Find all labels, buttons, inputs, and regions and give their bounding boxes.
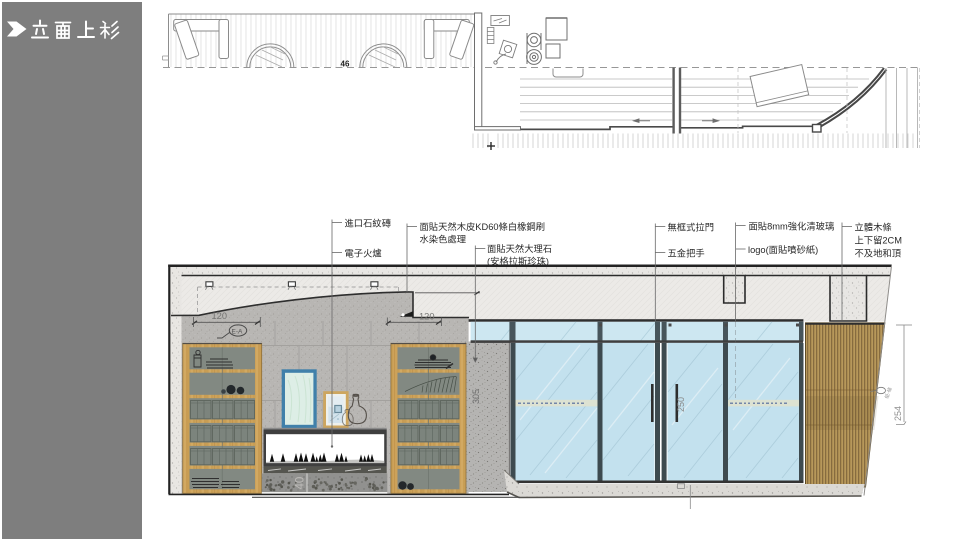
svg-text:250: 250 [676,397,686,412]
svg-text:40: 40 [295,477,307,490]
svg-text:120: 120 [419,312,435,322]
svg-text:五金把手: 五金把手 [668,248,705,259]
svg-text:254: 254 [893,406,903,421]
svg-text:面貼天然木皮KD60條白橡鋼刷: 面貼天然木皮KD60條白橡鋼刷 [420,221,546,232]
svg-text:面貼8mm強化清玻璃: 面貼8mm強化清玻璃 [749,221,835,232]
svg-text:水染色處理: 水染色處理 [420,234,467,245]
svg-text:120: 120 [212,311,228,321]
svg-text:305: 305 [471,389,481,404]
svg-text:立體木條: 立體木條 [855,222,892,233]
svg-text:46: 46 [341,60,350,69]
svg-text:logo(面貼噴砂紙): logo(面貼噴砂紙) [748,244,818,255]
svg-text:(安格拉斯珍珠): (安格拉斯珍珠) [487,256,549,267]
svg-text:E-A: E-A [232,329,244,336]
svg-text:無框式拉門: 無框式拉門 [668,222,715,233]
svg-text:不及地和頂: 不及地和頂 [855,248,902,259]
svg-text:上下留2CM: 上下留2CM [855,235,903,246]
svg-text:面貼天然大理石: 面貼天然大理石 [487,243,552,254]
svg-text:電子火爐: 電子火爐 [345,248,382,259]
svg-text:進口石紋磚: 進口石紋磚 [345,218,392,229]
